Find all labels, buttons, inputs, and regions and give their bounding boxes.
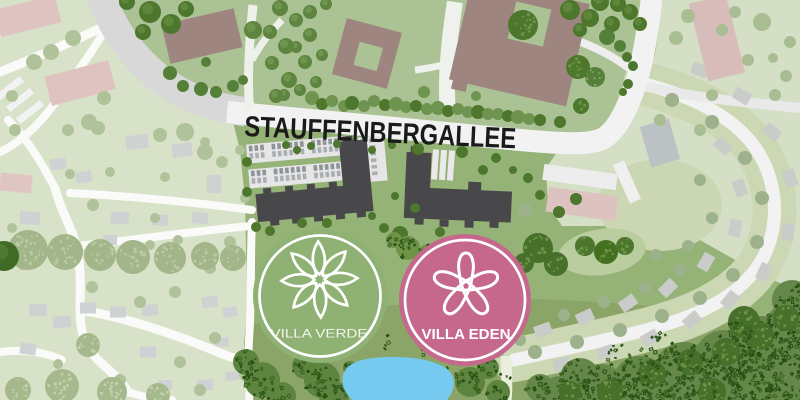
svg-text:VILLA EDEN: VILLA EDEN bbox=[422, 326, 511, 343]
svg-text:VILLA VERDE: VILLA VERDE bbox=[271, 327, 368, 341]
